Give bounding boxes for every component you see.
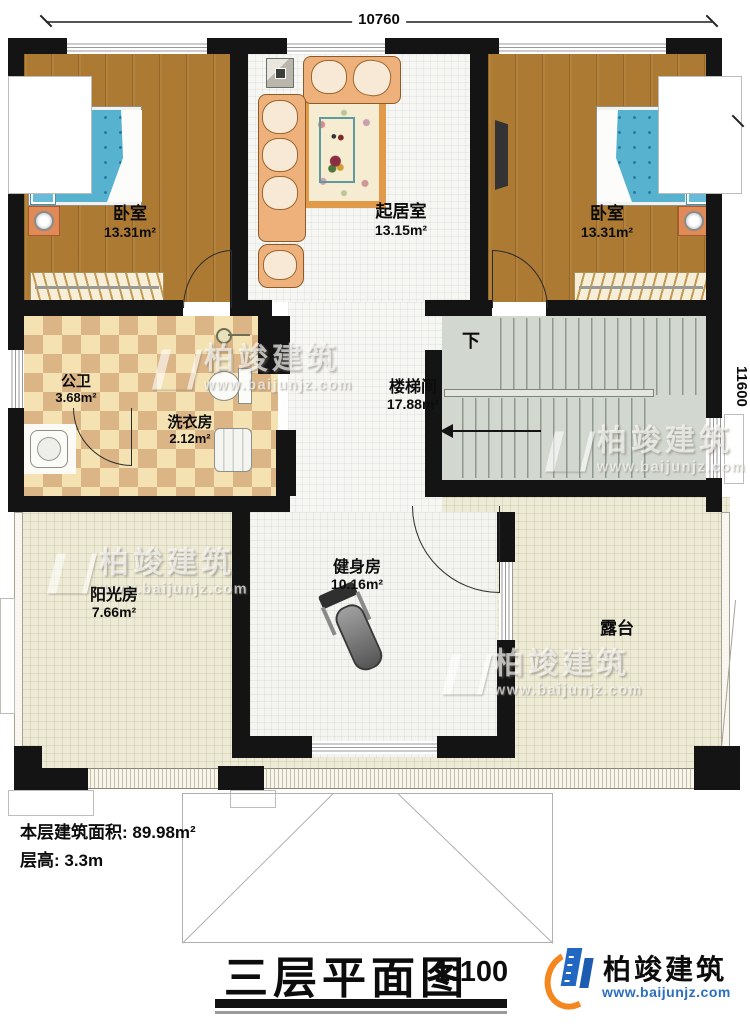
floor-area-value: 本层建筑面积: 89.98m² (20, 823, 196, 842)
wall-segment (248, 300, 272, 316)
floor-height-text: 层高: 3.3m (20, 846, 103, 871)
window (499, 562, 513, 640)
toilet-tank (238, 368, 252, 404)
wall-segment (546, 300, 722, 316)
room-area: 13.15m² (375, 222, 427, 238)
dimension-value: 10760 (358, 11, 400, 28)
room-label-sunroom: 阳光房 7.66m² (90, 588, 138, 622)
scale-text: 1:100 (434, 956, 508, 988)
stair-upper-flight (500, 318, 706, 395)
wall-segment (425, 350, 442, 480)
wall-segment (470, 54, 488, 316)
room-label-bedroom-left: 卧室 13.31m² (104, 205, 156, 241)
room-name: 公卫 (61, 373, 91, 390)
outer-sill (724, 414, 744, 484)
brand-url-text: www.baijunjz.com (602, 984, 731, 1000)
window (287, 41, 385, 52)
wall-segment (425, 300, 492, 316)
room-area: 13.31m² (104, 224, 156, 240)
sofa-cushion (262, 100, 298, 134)
dimension-height: 11600 (733, 362, 749, 411)
outer-sill (0, 598, 15, 714)
outer-sill (8, 790, 94, 816)
toilet-bowl (208, 371, 240, 401)
room-label-terrace: 露台 (600, 620, 634, 638)
window (312, 741, 437, 754)
room-area: 17.88m² (387, 396, 439, 412)
brand-logo (545, 946, 597, 1004)
brand-name-text: 柏竣建筑 (603, 954, 727, 985)
stair-handrail (444, 389, 654, 397)
sofa-cushion (311, 60, 347, 94)
stair-lower-flight (462, 398, 650, 478)
room-name: 阳光房 (90, 587, 138, 604)
room-name: 起居室 (376, 202, 427, 221)
room-area: 3.68m² (55, 390, 96, 405)
room-name: 卧室 (590, 204, 624, 223)
wall-segment (276, 430, 296, 496)
wardrobe (574, 272, 708, 302)
wall-pier (694, 746, 740, 790)
brand-url: www.baijunjz.com (602, 984, 731, 1000)
shower-arm (228, 334, 250, 336)
room-name: 楼梯间 (389, 379, 437, 396)
wall-segment (230, 54, 248, 316)
brand-name: 柏竣建筑 (603, 948, 727, 988)
room-name: 洗衣房 (167, 414, 212, 431)
wall-segment (437, 736, 515, 758)
room-label-laundry: 洗衣房 2.12m² (167, 415, 212, 447)
wardrobe-rod (579, 286, 703, 289)
terrace-wall (14, 512, 23, 774)
washing-machine (214, 428, 252, 472)
room-label-bedroom-right: 卧室 13.31m² (581, 205, 633, 241)
sofa-cushion (262, 138, 298, 172)
shower-head-icon (216, 328, 232, 344)
wall-segment (207, 38, 287, 54)
room-label-bathroom: 公卫 3.68m² (55, 374, 96, 406)
room-area: 2.12m² (169, 431, 210, 446)
wall-segment (425, 480, 722, 497)
tv-icon (495, 120, 508, 190)
title-underline-thin (215, 1011, 507, 1014)
floor-height-value: 层高: 3.3m (20, 851, 103, 870)
window (499, 41, 666, 52)
down-text: 下 (462, 331, 480, 351)
table-lamp-icon (275, 68, 286, 79)
lamp-icon (684, 211, 704, 231)
corner-table (266, 58, 294, 88)
drawing-title: 三层平面图 (224, 942, 469, 1006)
floor-plan-page: 柏竣建筑 www.baijunjz.com 柏竣建筑 www.baijunjz.… (0, 0, 750, 1026)
room-name: 卧室 (113, 204, 147, 223)
room-area: 10.16m² (331, 576, 383, 592)
lamp-icon (34, 211, 54, 231)
roof-outline (182, 793, 553, 943)
washbasin (30, 430, 68, 468)
sofa-cushion (263, 250, 297, 280)
stair-arrow-tail (453, 430, 541, 432)
wardrobe-rod (35, 286, 159, 289)
dimension-width: 10760 (352, 12, 406, 28)
dimension-value: 11600 (733, 366, 750, 407)
room-label-gym: 健身房 10.16m² (331, 560, 383, 594)
wall-pier (218, 766, 264, 790)
room-area: 7.66m² (92, 604, 136, 620)
basin-bowl (37, 437, 61, 461)
nightstand (28, 206, 60, 236)
stairs-down-label: 下 (462, 332, 480, 351)
wall-segment (232, 736, 312, 758)
wall-segment (24, 300, 183, 316)
outer-sill (8, 76, 92, 194)
room-name: 健身房 (333, 559, 381, 576)
title-text: 三层平面图 (224, 954, 469, 1003)
room-label-stairwell: 楼梯间 17.88m² (387, 380, 439, 414)
sofa-cushion (262, 176, 298, 210)
wall-segment (385, 38, 499, 54)
wall-segment (18, 496, 290, 512)
terrace-wall (14, 768, 730, 789)
window (67, 41, 207, 52)
outer-sill (658, 76, 742, 194)
room-label-living: 起居室 13.15m² (375, 203, 427, 239)
wall-pier (14, 768, 88, 790)
title-underline-thick (215, 999, 507, 1008)
wardrobe (30, 272, 164, 302)
window (9, 350, 23, 408)
room-name: 露台 (600, 619, 634, 638)
coffee-table (319, 117, 355, 183)
wall-segment (497, 640, 515, 738)
window (707, 418, 721, 478)
wall-segment (258, 316, 290, 374)
room-area: 13.31m² (581, 224, 633, 240)
floor-area-text: 本层建筑面积: 89.98m² (20, 818, 196, 843)
wall-segment (232, 512, 250, 738)
drawing-scale: 1:100 (434, 956, 508, 989)
